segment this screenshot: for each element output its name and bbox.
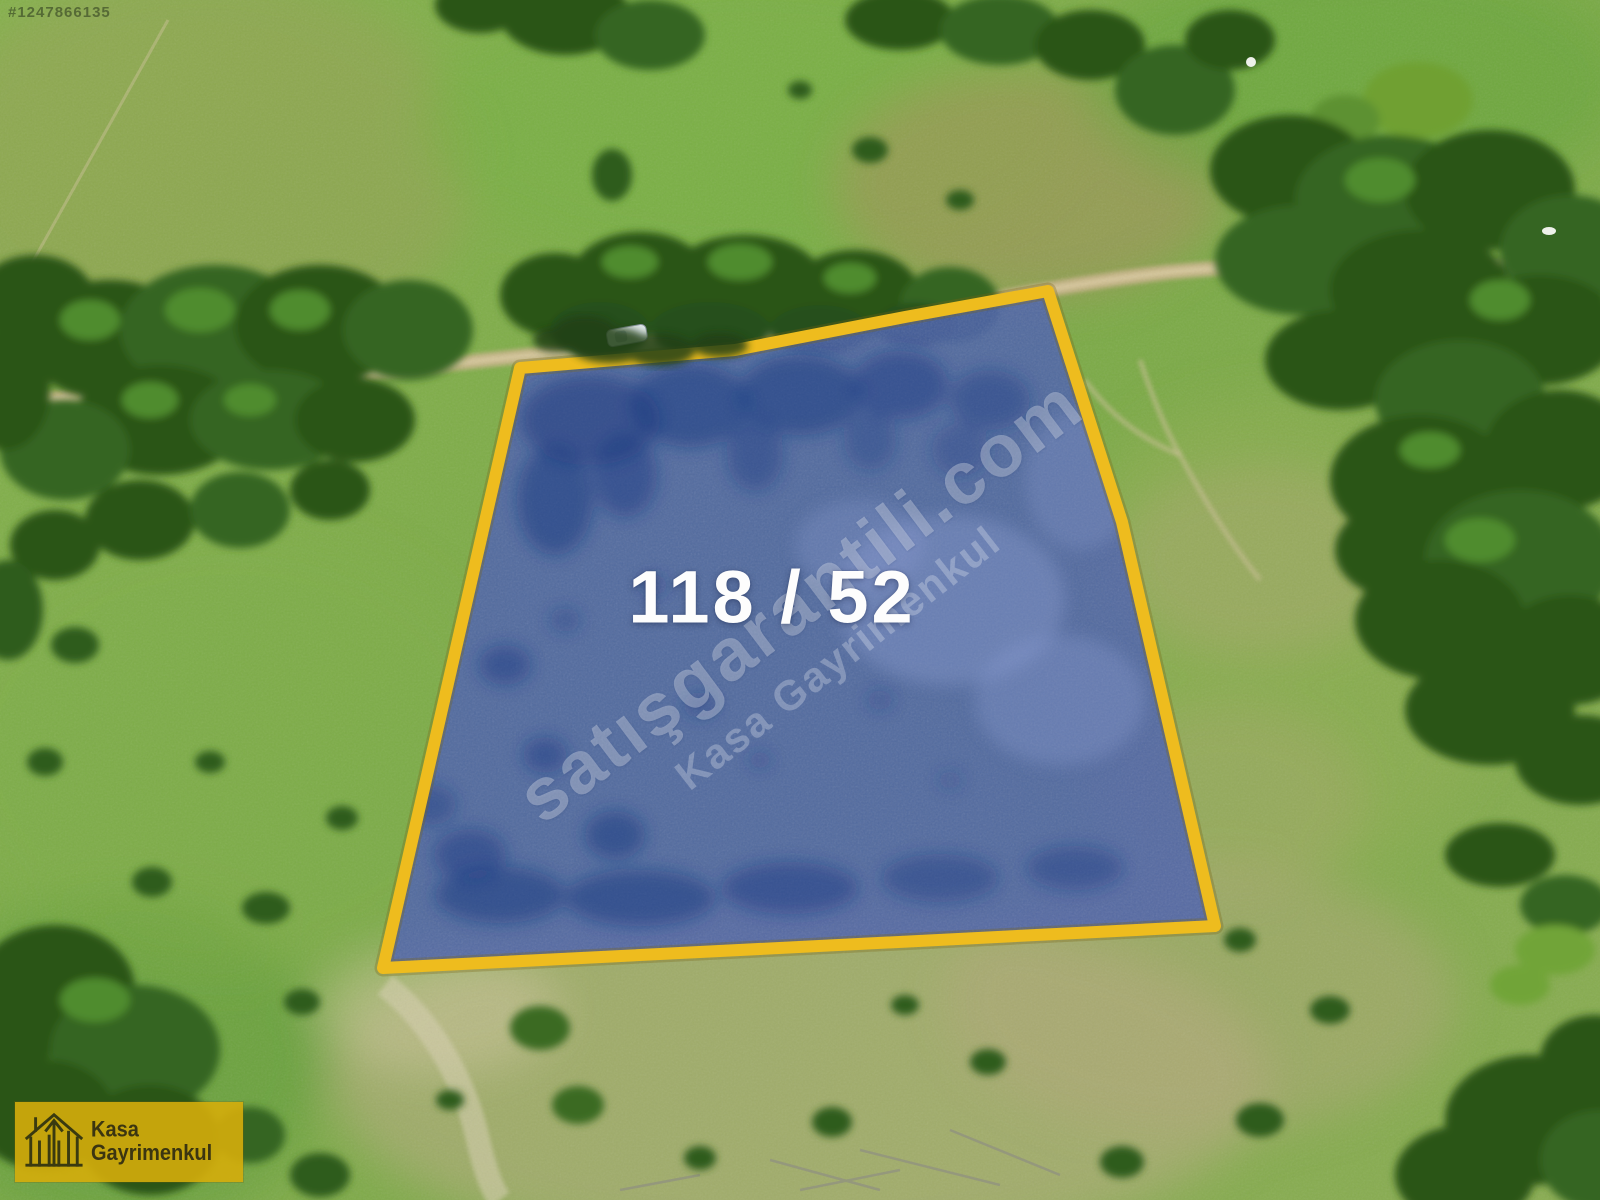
- aerial-photo: #1247866135 satışgarantili.com Kasa Gayr…: [0, 0, 1600, 1200]
- aerial-scene: [0, 0, 1600, 1200]
